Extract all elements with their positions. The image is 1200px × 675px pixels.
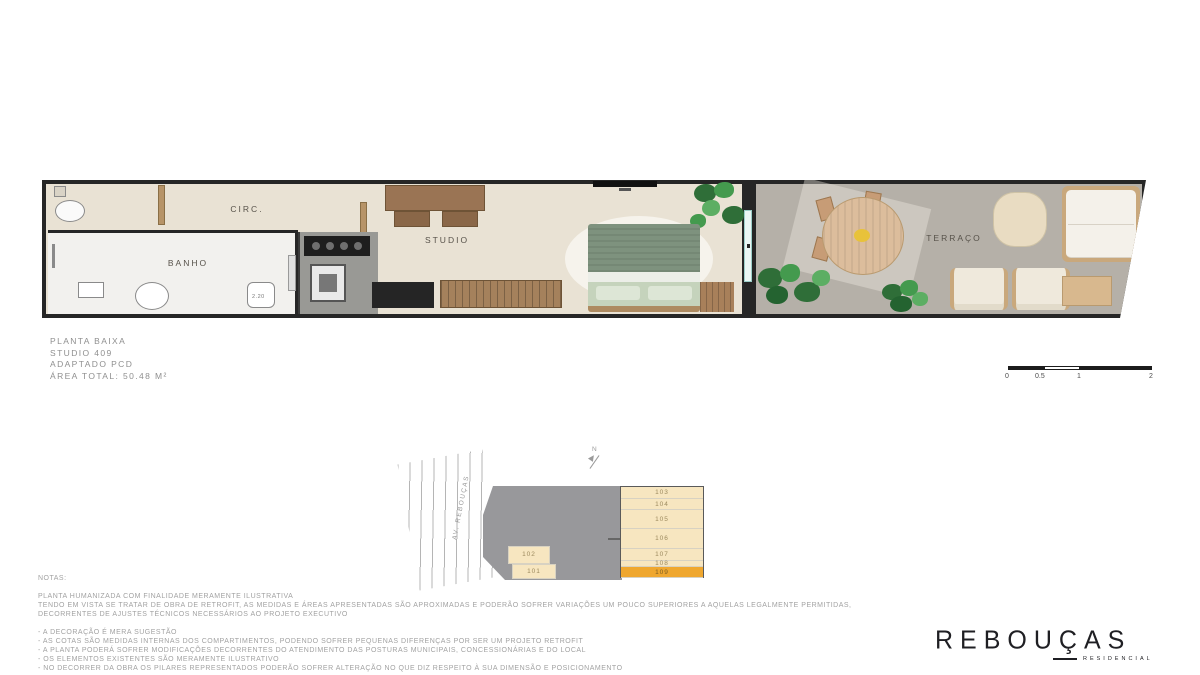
scale-label: 1 bbox=[1077, 373, 1081, 380]
notes-block: NOTAS: PLANTA HUMANIZADA COM FINALIDADE … bbox=[38, 574, 852, 673]
scale-bar: 0 0.5 1 2 bbox=[1005, 360, 1155, 384]
plan-title: PLANTA BAIXA bbox=[50, 336, 168, 348]
chair-icon bbox=[442, 211, 478, 227]
scale-segment bbox=[1080, 366, 1152, 370]
dimension-label: 2.20 bbox=[252, 294, 265, 300]
scale-label: 0.5 bbox=[1035, 373, 1045, 380]
bench-icon bbox=[700, 282, 734, 312]
notes-line: TENDO EM VISTA SE TRATAR DE OBRA DE RETR… bbox=[38, 601, 852, 610]
notes-bullet: - A PLANTA PODERÁ SOFRER MODIFICAÇÕES DE… bbox=[38, 646, 852, 655]
unit-cell: 105 bbox=[621, 510, 703, 529]
logo-underline bbox=[1053, 658, 1077, 660]
notes-heading: NOTAS: bbox=[38, 574, 852, 583]
cooktop-icon bbox=[304, 236, 370, 256]
bed-icon bbox=[588, 224, 700, 312]
scale-label: 0 bbox=[1005, 373, 1009, 380]
unit-column: 103 104 105 106 107 108 109 bbox=[620, 486, 704, 578]
side-table-icon bbox=[1062, 276, 1112, 306]
scale-segment bbox=[1044, 366, 1080, 370]
logo-subtitle: RESIDENCIAL bbox=[1083, 656, 1153, 662]
unit-cell: 103 bbox=[621, 487, 703, 499]
accessibility-note: ADAPTADO PCD bbox=[50, 359, 168, 371]
oven-icon bbox=[310, 264, 346, 302]
notes-line: DECORRENTES DE AJUSTES TÉCNICOS NECESSÁR… bbox=[38, 610, 852, 619]
floorplan-page: BANHO 2.20 CIRC. STUDIO bbox=[0, 0, 1200, 675]
sofa-icon bbox=[1062, 186, 1140, 262]
notes-line: PLANTA HUMANIZADA COM FINALIDADE MERAMEN… bbox=[38, 592, 852, 601]
room-label-terraco: TERRAÇO bbox=[912, 233, 996, 243]
scale-label: 2 bbox=[1149, 373, 1153, 380]
key-plan: AV. REBOUÇAS N 103 104 105 106 107 108 1… bbox=[408, 446, 720, 588]
title-block: PLANTA BAIXA STUDIO 409 ADAPTADO PCD ÁRE… bbox=[50, 336, 168, 382]
unit-title: STUDIO 409 bbox=[50, 348, 168, 360]
shower-panel-icon bbox=[288, 255, 296, 291]
counter-icon bbox=[372, 282, 434, 308]
entry-fixture bbox=[54, 186, 66, 197]
toilet-icon bbox=[135, 282, 169, 310]
grab-bar-icon bbox=[52, 244, 55, 268]
tv-icon bbox=[593, 181, 657, 187]
armchair-icon bbox=[950, 268, 1008, 310]
pillow-icon bbox=[596, 286, 640, 300]
unit-cell: 104 bbox=[621, 499, 703, 510]
total-area: ÁREA TOTAL: 50.48 M² bbox=[50, 371, 168, 383]
dining-table-icon bbox=[385, 185, 485, 211]
scale-segment bbox=[1008, 366, 1044, 370]
door-leaf-icon bbox=[158, 185, 165, 225]
unit-cell: 106 bbox=[621, 529, 703, 549]
notes-bullet: - NO DECORRER DA OBRA OS PILARES REPRESE… bbox=[38, 664, 852, 673]
unit-cell: 102 bbox=[508, 546, 550, 564]
chair-icon bbox=[394, 211, 430, 227]
sink-icon bbox=[78, 282, 104, 298]
fruit-bowl-icon bbox=[854, 229, 870, 242]
pillow-icon bbox=[648, 286, 692, 300]
brand-logo: REBOUÇAS RESIDENCIAL bbox=[935, 626, 1175, 668]
room-label-circ: CIRC. bbox=[202, 204, 292, 214]
notes-bullet: - A DECORAÇÃO É MERA SUGESTÃO bbox=[38, 628, 852, 637]
logo-wordmark: REBOUÇAS bbox=[935, 625, 1131, 655]
room-label-banho: BANHO bbox=[128, 258, 248, 268]
tv-stand-icon bbox=[619, 188, 631, 191]
floor-plan: BANHO 2.20 CIRC. STUDIO bbox=[42, 180, 1146, 318]
washing-machine-icon bbox=[55, 200, 85, 222]
notes-bullet: - OS ELEMENTOS EXISTENTES SÃO MERAMENTE … bbox=[38, 655, 852, 664]
pouf-icon bbox=[993, 192, 1047, 247]
sideboard-icon bbox=[440, 280, 562, 308]
room-label-studio: STUDIO bbox=[397, 235, 497, 245]
glass-door-icon bbox=[744, 210, 752, 282]
notes-bullet: - AS COTAS SÃO MEDIDAS INTERNAS DOS COMP… bbox=[38, 637, 852, 646]
north-arrow-icon: N bbox=[584, 446, 610, 476]
